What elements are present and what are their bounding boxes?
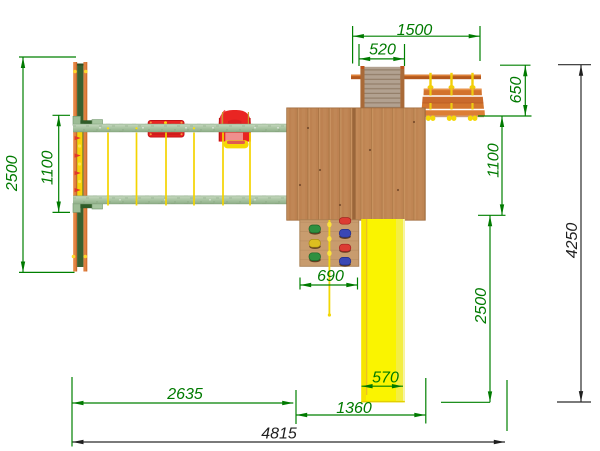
svg-text:1360: 1360 <box>336 400 372 417</box>
svg-text:650: 650 <box>508 77 525 104</box>
svg-text:4250: 4250 <box>564 223 581 259</box>
svg-text:1500: 1500 <box>397 22 433 39</box>
svg-text:4815: 4815 <box>261 426 297 443</box>
svg-text:690: 690 <box>317 268 344 285</box>
svg-text:2500: 2500 <box>473 288 490 325</box>
svg-text:2500: 2500 <box>4 155 21 192</box>
svg-text:520: 520 <box>369 42 396 59</box>
svg-text:570: 570 <box>372 370 399 387</box>
svg-text:1100: 1100 <box>486 143 503 178</box>
svg-text:2635: 2635 <box>166 386 203 403</box>
svg-text:1100: 1100 <box>40 150 57 185</box>
